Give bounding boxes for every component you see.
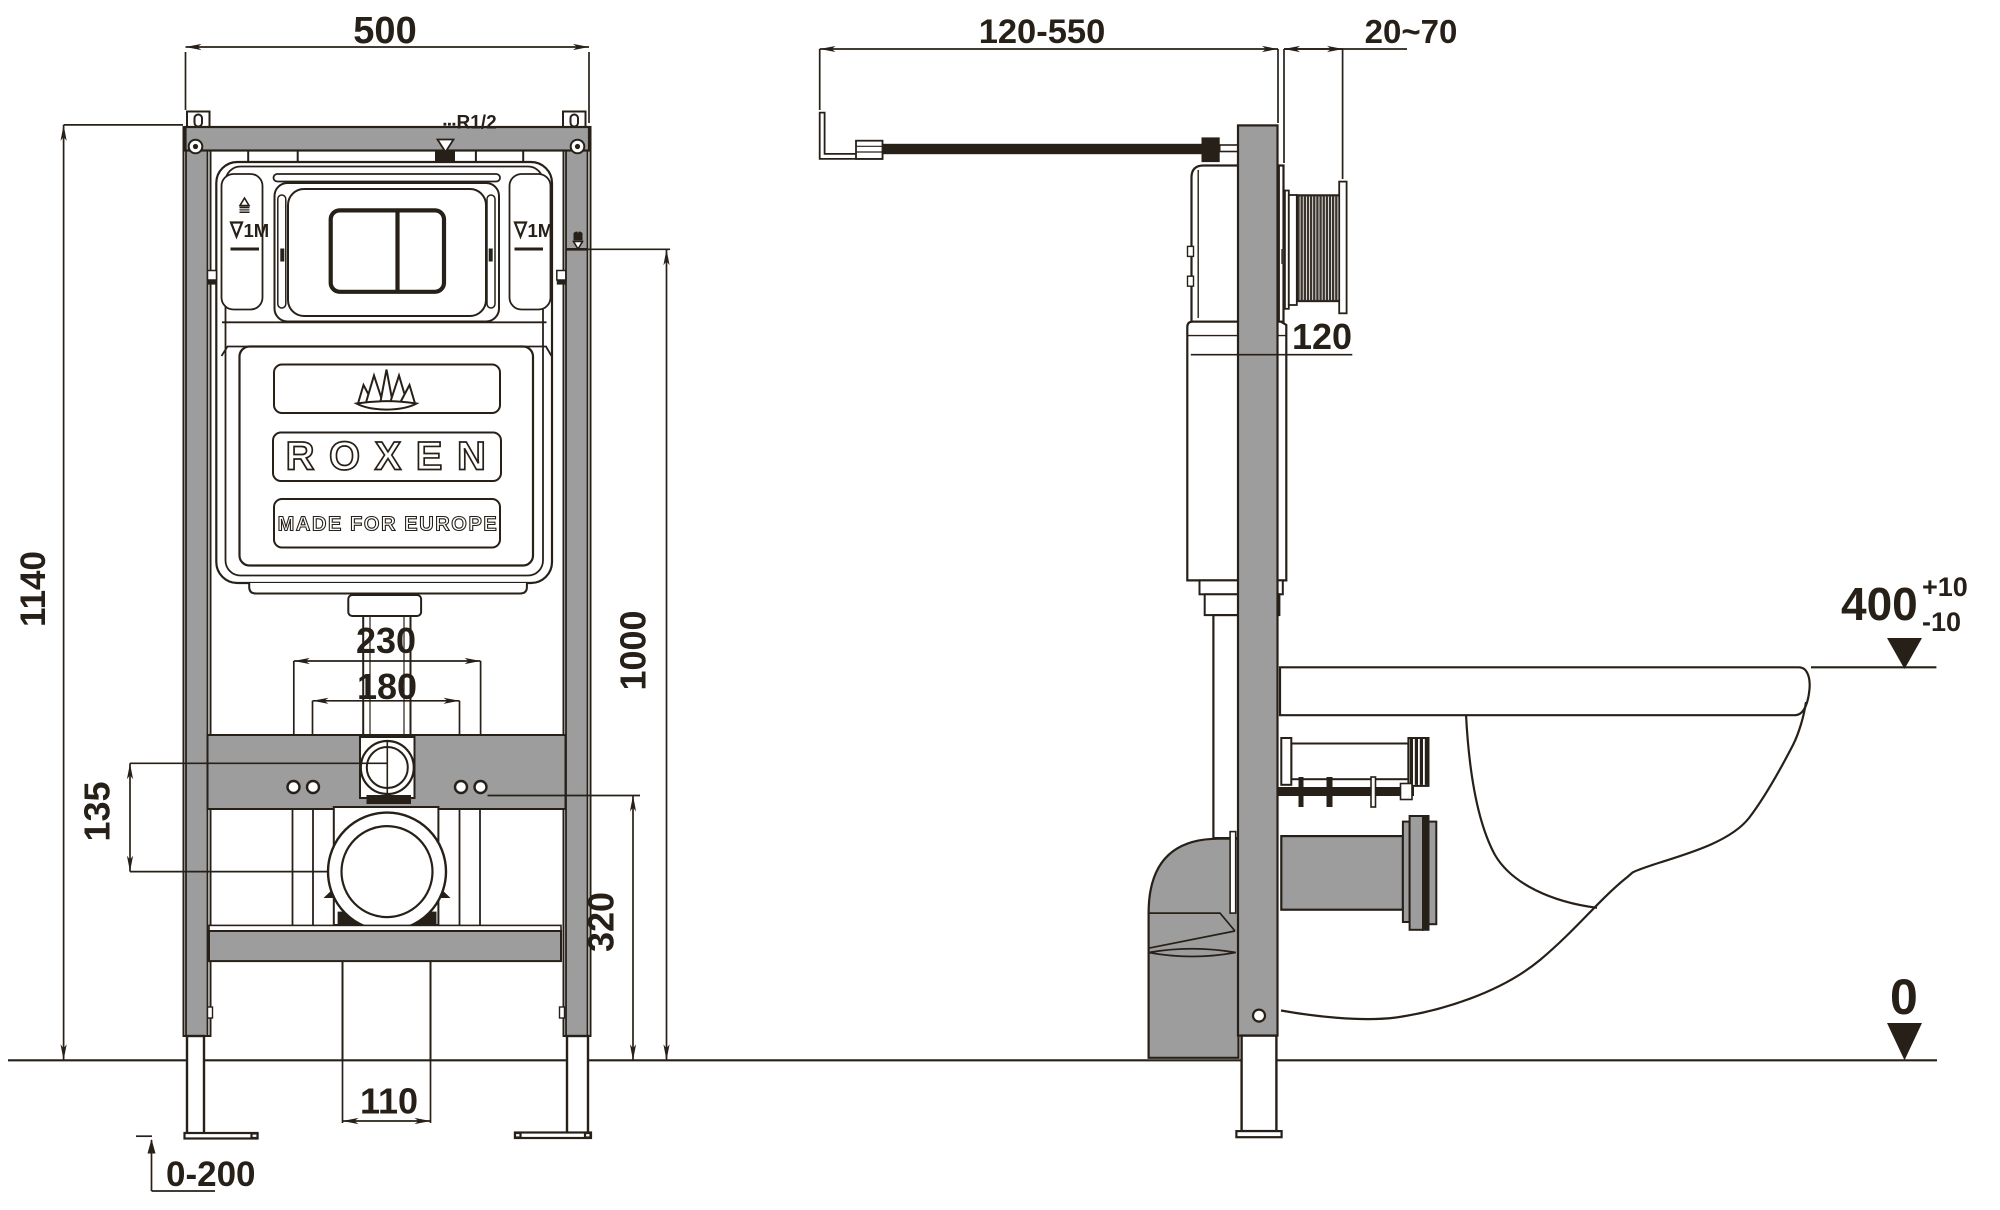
svg-text:120: 120 bbox=[1292, 316, 1352, 357]
svg-text:20~70: 20~70 bbox=[1365, 13, 1458, 50]
svg-text:1000: 1000 bbox=[613, 610, 654, 690]
svg-text:0-200: 0-200 bbox=[166, 1155, 256, 1194]
svg-text:230: 230 bbox=[356, 620, 416, 661]
svg-text:1140: 1140 bbox=[14, 551, 53, 627]
svg-text:500: 500 bbox=[353, 10, 416, 52]
svg-text:ROXEN: ROXEN bbox=[286, 435, 501, 479]
svg-text:320: 320 bbox=[581, 892, 622, 952]
svg-text:400: 400 bbox=[1841, 578, 1918, 630]
svg-text:180: 180 bbox=[357, 666, 417, 707]
svg-text:MADE FOR EUROPE: MADE FOR EUROPE bbox=[278, 514, 499, 536]
svg-text:1M: 1M bbox=[244, 220, 270, 241]
svg-text:-10: -10 bbox=[1922, 607, 1961, 637]
svg-text:135: 135 bbox=[77, 781, 118, 841]
svg-text:1M: 1M bbox=[528, 220, 554, 241]
svg-text:R1/2: R1/2 bbox=[457, 113, 497, 134]
svg-text:120-550: 120-550 bbox=[979, 13, 1106, 51]
svg-text:+10: +10 bbox=[1922, 572, 1968, 602]
svg-text:0: 0 bbox=[1890, 969, 1918, 1025]
svg-text:110: 110 bbox=[360, 1081, 418, 1122]
